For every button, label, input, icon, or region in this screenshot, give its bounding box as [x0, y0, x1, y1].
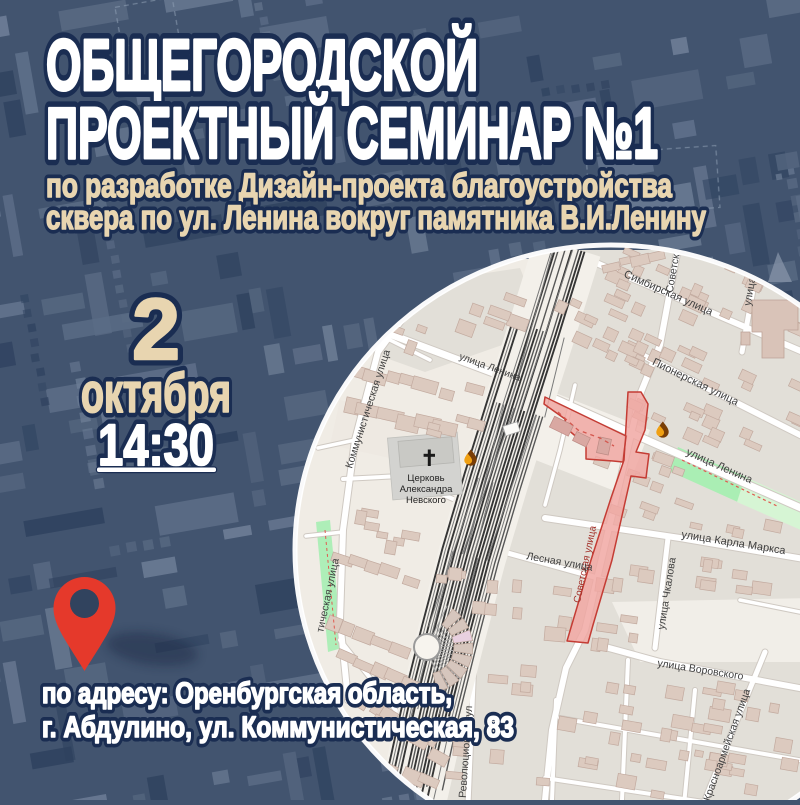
svg-text:ПРОЕКТНЫЙ СЕМИНАР №1: ПРОЕКТНЫЙ СЕМИНАР №1: [46, 92, 658, 174]
svg-text:по адресу: Оренбургская област: по адресу: Оренбургская область,: [42, 677, 452, 710]
svg-text:Церковь: Церковь: [407, 473, 444, 484]
svg-text:Невского: Невского: [406, 495, 446, 506]
svg-text:г. Абдулино, ул. Коммунистичес: г. Абдулино, ул. Коммунистическая, 83: [42, 711, 514, 744]
svg-text:сквера по ул. Ленина вокруг па: сквера по ул. Ленина вокруг памятника В.…: [46, 199, 706, 237]
svg-text:Александра: Александра: [400, 484, 454, 495]
